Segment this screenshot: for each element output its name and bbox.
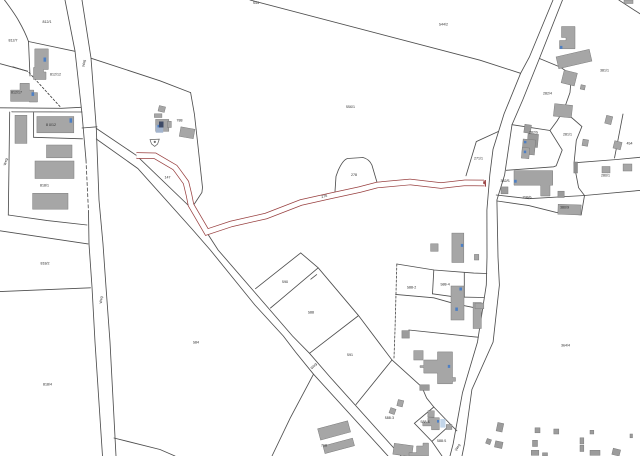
svg-text:812/1: 812/1 bbox=[43, 20, 52, 24]
svg-text:812/17: 812/17 bbox=[11, 91, 22, 95]
svg-text:282/4: 282/4 bbox=[543, 92, 552, 96]
svg-text:282/5: 282/5 bbox=[529, 131, 538, 135]
svg-text:588-2: 588-2 bbox=[407, 286, 416, 290]
svg-text:271/1: 271/1 bbox=[474, 157, 483, 161]
svg-text:281/1: 281/1 bbox=[563, 133, 572, 137]
svg-text:812/7: 812/7 bbox=[9, 39, 18, 43]
svg-text:588: 588 bbox=[308, 311, 314, 315]
svg-text:544/2: 544/2 bbox=[439, 23, 448, 27]
svg-text:768: 768 bbox=[321, 444, 327, 448]
svg-text:380/9: 380/9 bbox=[560, 206, 569, 210]
svg-text:147: 147 bbox=[165, 176, 171, 180]
svg-text:454: 454 bbox=[627, 142, 633, 146]
svg-text:544: 544 bbox=[253, 1, 259, 5]
svg-text:Weg: Weg bbox=[99, 296, 104, 304]
svg-text:280/1: 280/1 bbox=[601, 174, 610, 178]
svg-text:298/6: 298/6 bbox=[523, 196, 532, 200]
svg-text:584: 584 bbox=[193, 341, 199, 345]
svg-text:588-5: 588-5 bbox=[437, 439, 446, 443]
svg-text:278: 278 bbox=[351, 173, 357, 177]
svg-text:588-3: 588-3 bbox=[385, 416, 394, 420]
svg-text:382/5: 382/5 bbox=[501, 179, 510, 183]
svg-text:818/2: 818/2 bbox=[41, 262, 50, 266]
svg-text:812/12: 812/12 bbox=[50, 73, 61, 77]
svg-text:364/4: 364/4 bbox=[561, 344, 570, 348]
svg-text:588-4: 588-4 bbox=[441, 283, 450, 287]
svg-text:788: 788 bbox=[177, 119, 183, 123]
svg-text:381/1: 381/1 bbox=[600, 69, 609, 73]
svg-text:591: 591 bbox=[347, 353, 353, 357]
svg-text:588-6: 588-6 bbox=[421, 420, 430, 424]
svg-text:818/1: 818/1 bbox=[40, 184, 49, 188]
svg-text:590: 590 bbox=[282, 280, 288, 284]
svg-text:818/4: 818/4 bbox=[43, 383, 52, 387]
svg-text:556/1: 556/1 bbox=[346, 105, 355, 109]
svg-text:8 0/12: 8 0/12 bbox=[46, 123, 56, 127]
